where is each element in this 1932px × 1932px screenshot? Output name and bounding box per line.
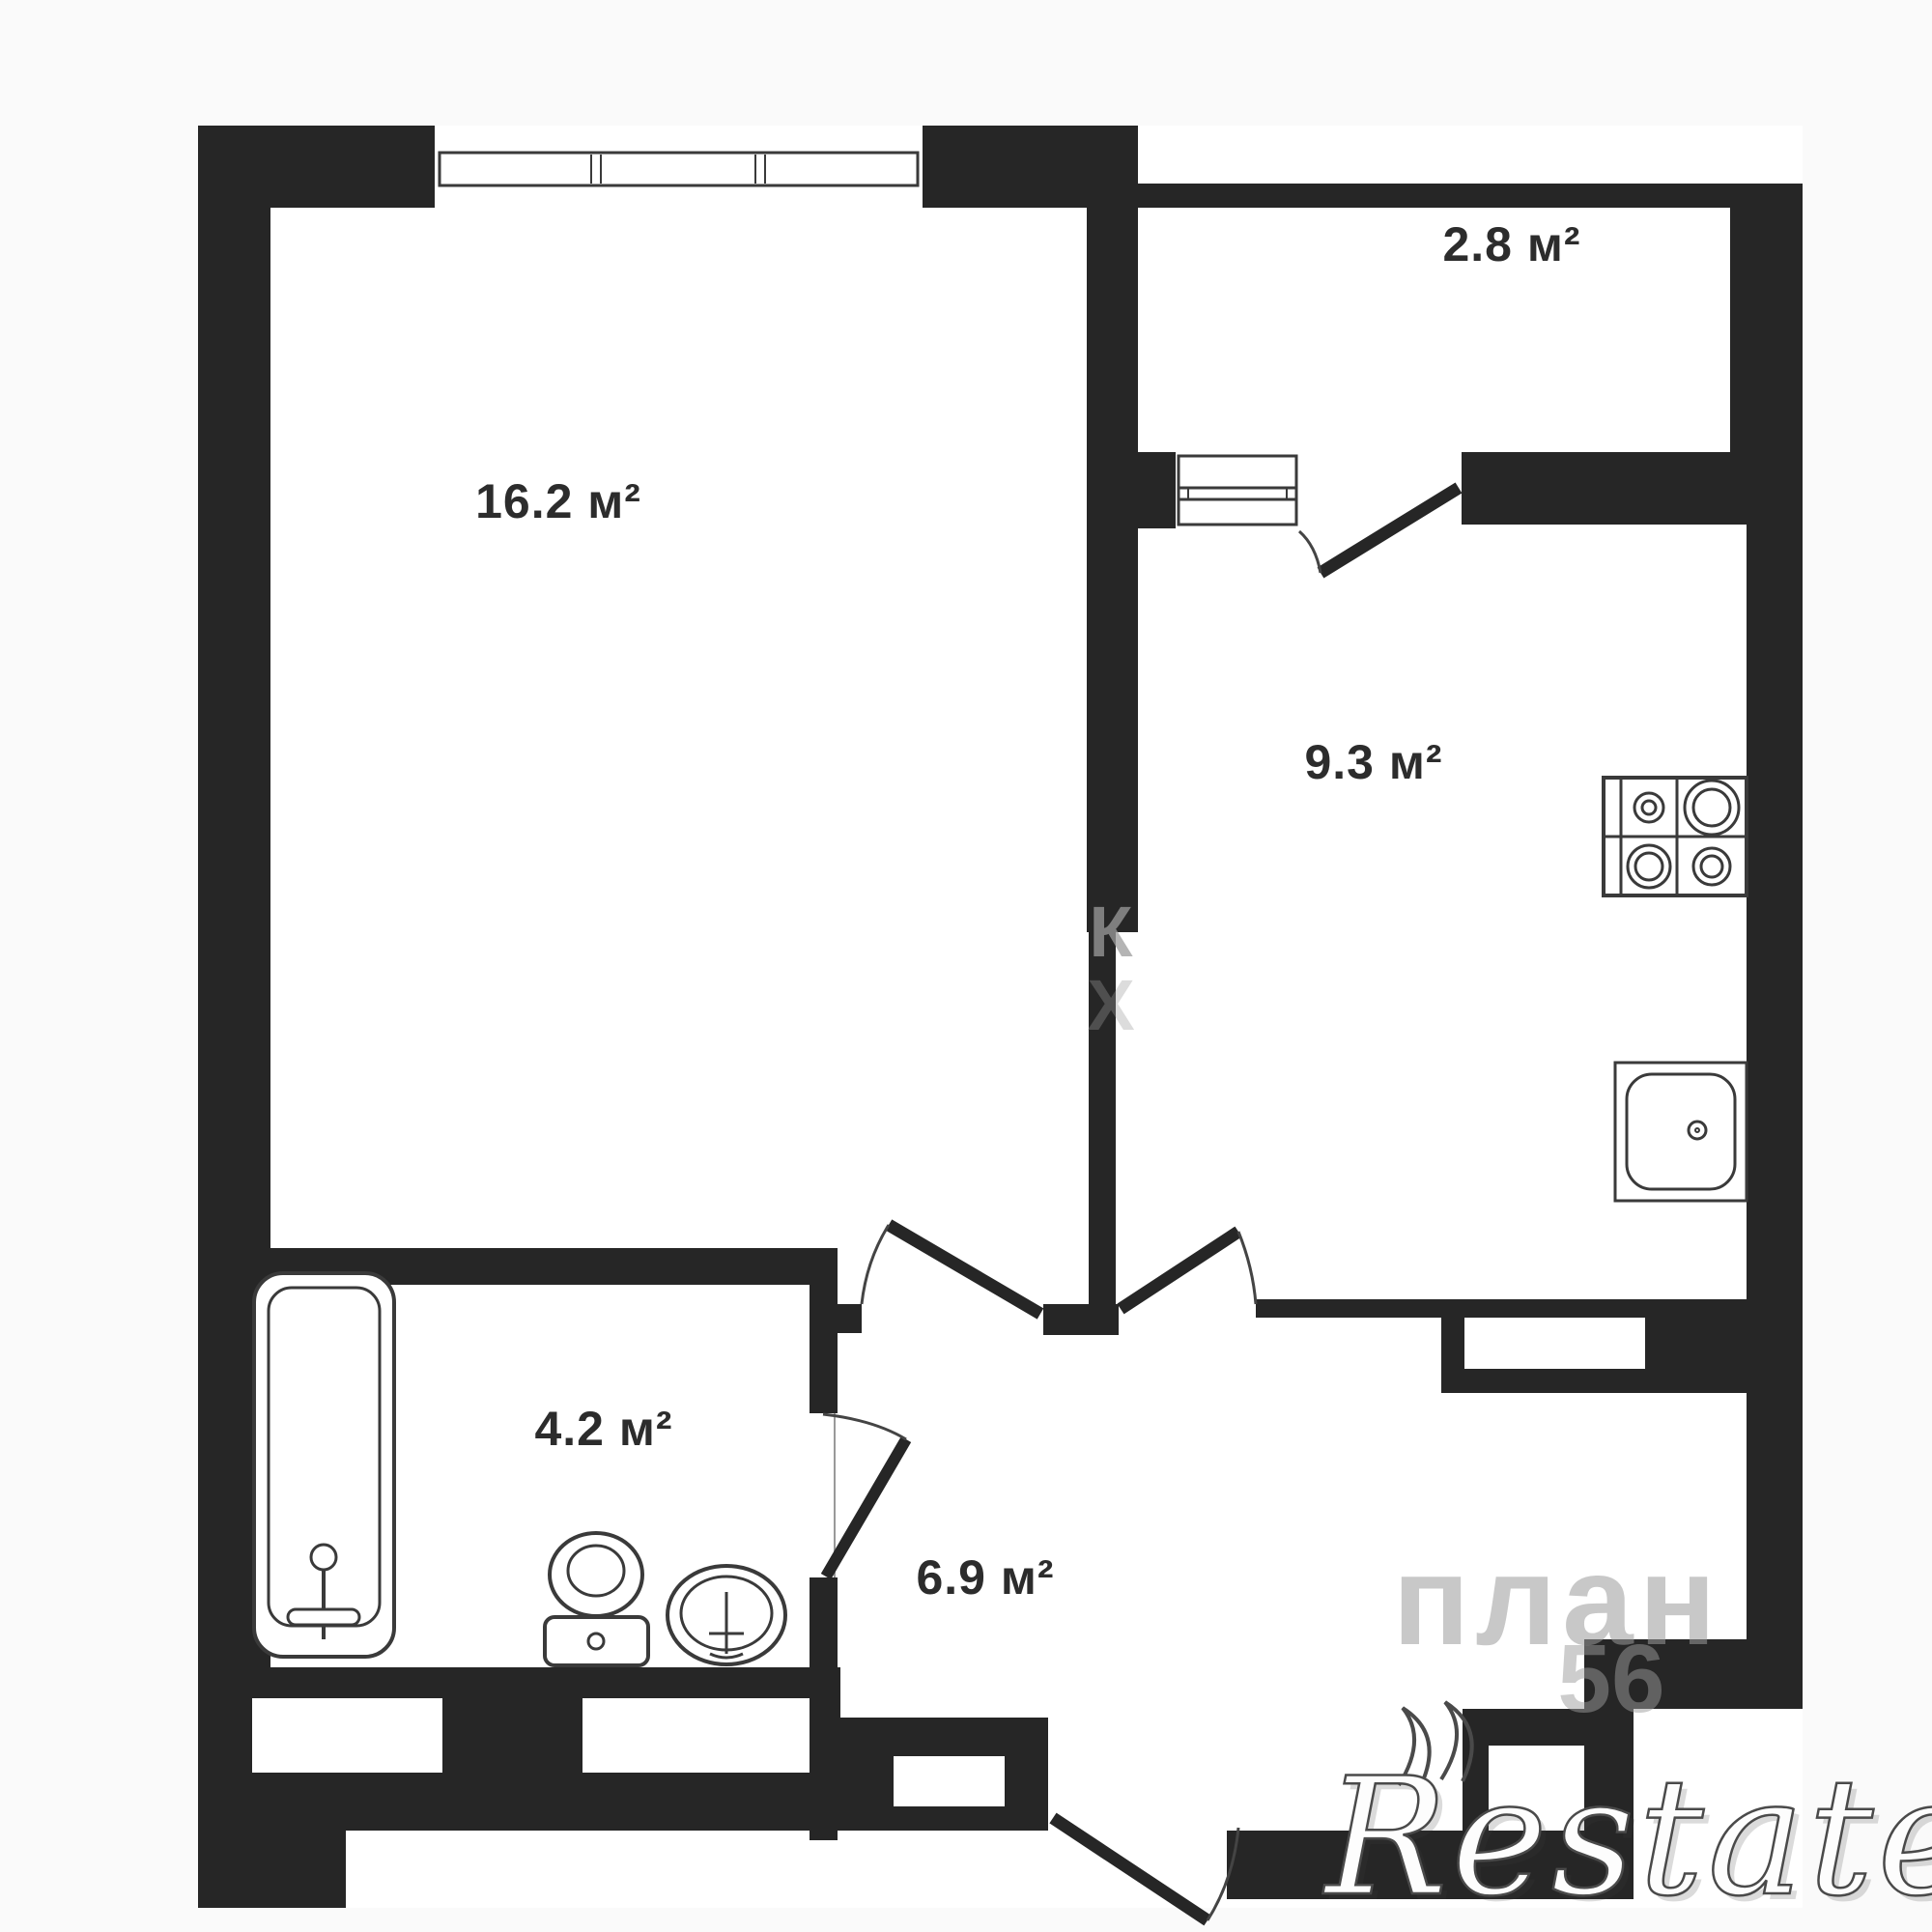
niche-hallway	[894, 1756, 1005, 1806]
stove-burner	[1635, 853, 1662, 880]
logo-text: Restate	[1322, 1743, 1932, 1932]
bathroom-area-label: 4.2 м²	[534, 1402, 672, 1456]
toilet-icon	[545, 1533, 648, 1665]
niche-kitchen	[1464, 1318, 1645, 1369]
wall-divider-notch	[838, 1304, 862, 1333]
washbasin-icon	[668, 1566, 785, 1664]
watermark-letter-k: К	[1089, 892, 1133, 972]
wall-balcony-top	[1123, 184, 1803, 208]
toilet-button	[588, 1634, 604, 1649]
stove-icon	[1604, 778, 1747, 895]
stove-burner	[1701, 856, 1722, 877]
wall-bath-divider-top	[810, 1285, 838, 1413]
balcony-window-frame	[1179, 456, 1296, 525]
watermark-letter-x: Х	[1087, 965, 1134, 1045]
wall-kitchen-bottom-thin	[1256, 1299, 1441, 1318]
bathtub-icon	[254, 1273, 394, 1657]
toilet-bowl-inner	[568, 1546, 624, 1596]
wall-balcony-stub	[1087, 452, 1176, 528]
kitchen-area-label: 9.3 м²	[1304, 735, 1442, 789]
niche-bath-right	[582, 1698, 810, 1773]
bathtub-drain	[311, 1545, 336, 1570]
stove-burner	[1693, 789, 1730, 826]
watermark-site-number: 56	[1557, 1625, 1664, 1733]
window-frame	[440, 153, 918, 185]
stove-burner	[1642, 801, 1656, 814]
window-icon	[440, 153, 918, 185]
floor-plan-page: 16.2 м² 2.8 м² 9.3 м² 4.2 м² 6.9 м² К Х …	[0, 0, 1932, 1932]
kitchen-sink-icon	[1615, 1063, 1747, 1201]
wall-corner-block	[198, 1831, 346, 1908]
floor-plan: 16.2 м² 2.8 м² 9.3 м² 4.2 м² 6.9 м² К Х …	[0, 0, 1932, 1932]
kitchen-sink-drain-dot	[1695, 1128, 1699, 1132]
kitchen-sink-inner	[1627, 1074, 1735, 1189]
balcony-window-icon	[1179, 456, 1296, 525]
bathtub-faucet-bar	[288, 1609, 359, 1625]
wall-balcony-right	[1730, 184, 1803, 457]
wall-room-divider-upper	[1087, 126, 1138, 932]
hallway-area-label: 6.9 м²	[916, 1550, 1054, 1605]
living-room-area-label: 16.2 м²	[475, 474, 641, 528]
wall-kitchen-right	[1747, 525, 1803, 1639]
niche-bath-left	[252, 1698, 442, 1773]
wall-kitchen-corner	[1462, 452, 1803, 525]
wall-door-pillar	[1043, 1304, 1119, 1335]
balcony-area-label: 2.8 м²	[1442, 217, 1580, 271]
